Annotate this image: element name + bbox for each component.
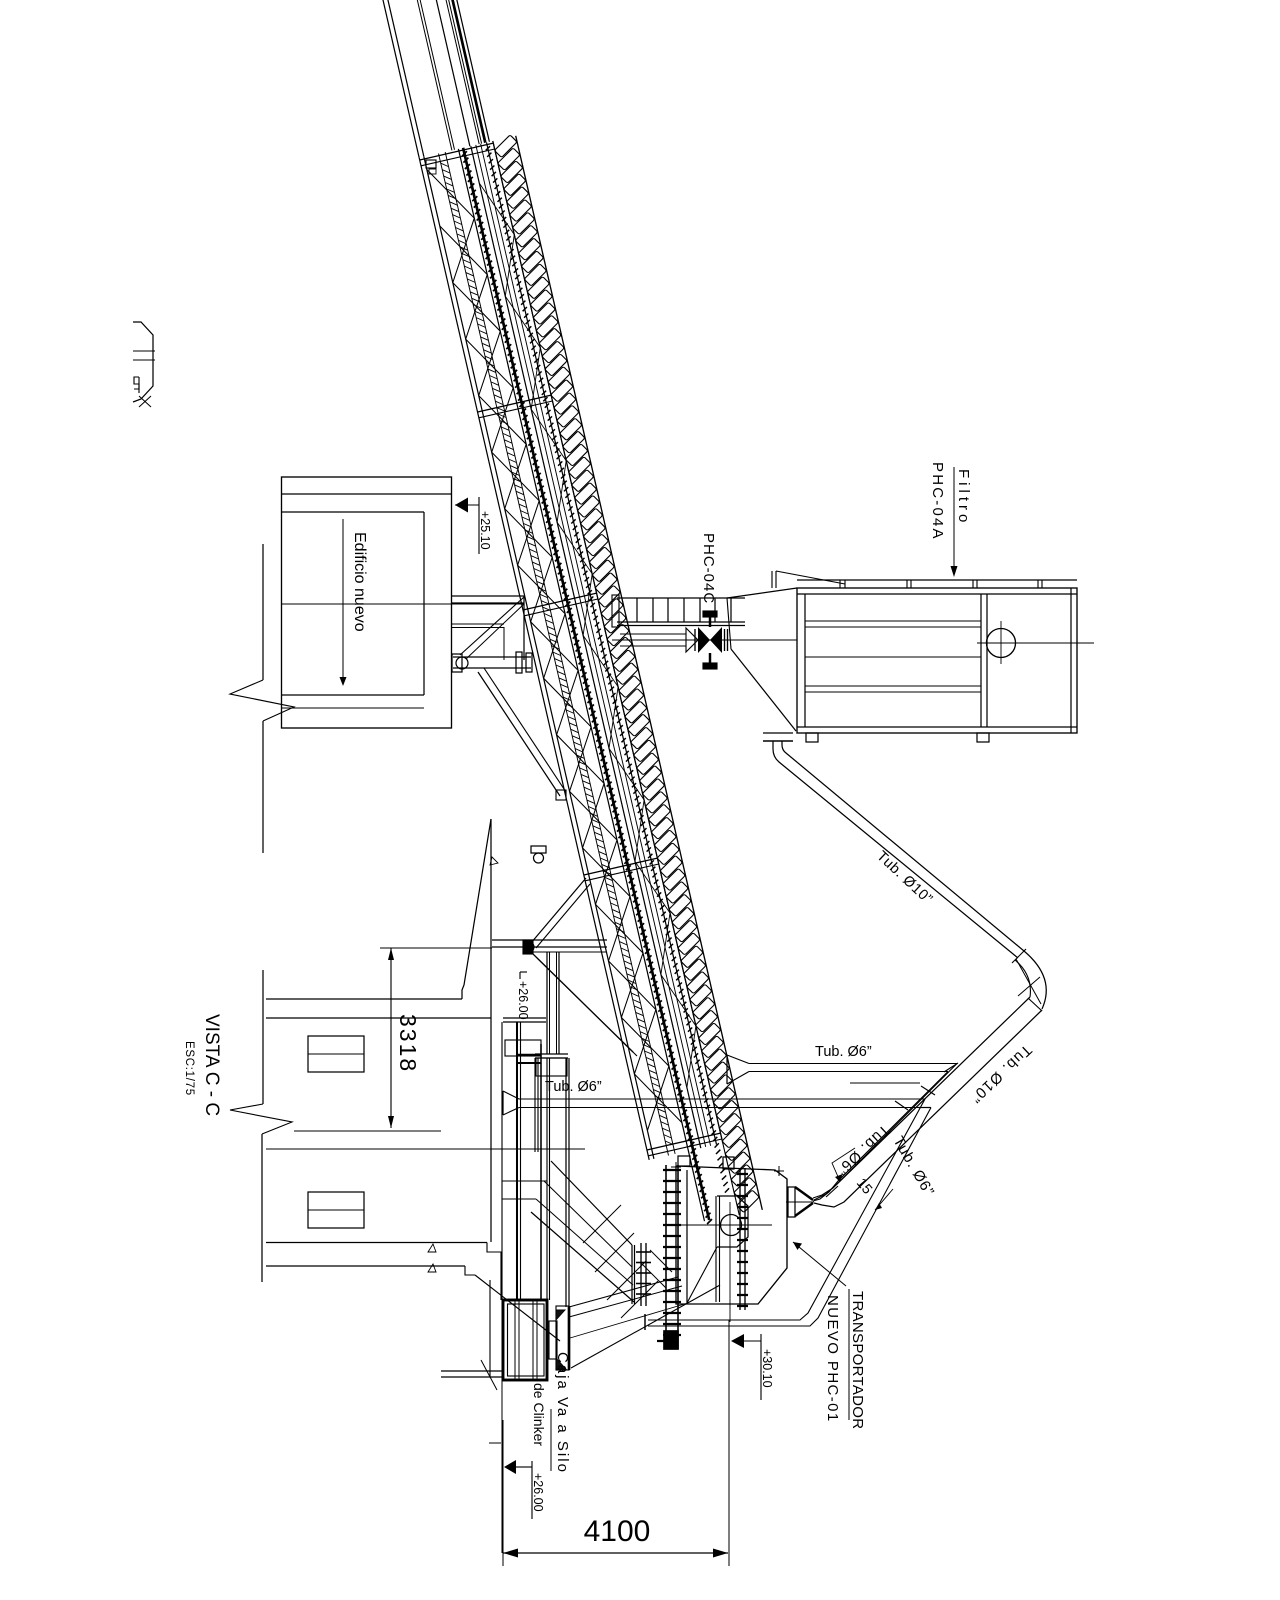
svg-text:PHC-04C: PHC-04C	[700, 533, 717, 604]
svg-text:+30.10: +30.10	[760, 1349, 774, 1388]
svg-text:+25.10: +25.10	[478, 511, 492, 550]
svg-text:+26.00: +26.00	[516, 981, 530, 1020]
svg-text:ESC:1/75: ESC:1/75	[183, 1041, 195, 1096]
svg-text:NUEVO PHC-01: NUEVO PHC-01	[824, 1295, 841, 1423]
svg-text:Filtro: Filtro	[955, 469, 972, 526]
svg-text:Edificio nuevo: Edificio nuevo	[351, 532, 368, 632]
svg-text:Tub. Ø6”: Tub. Ø6”	[545, 1079, 602, 1095]
svg-text:+26.00: +26.00	[531, 1473, 545, 1512]
svg-text:3318: 3318	[395, 1014, 421, 1073]
svg-text:TRANSPORTADOR: TRANSPORTADOR	[849, 1291, 866, 1429]
svg-text:de Clinker: de Clinker	[531, 1383, 547, 1446]
svg-text:VISTA C - C: VISTA C - C	[201, 1014, 222, 1116]
svg-text:Caja Va a Silo: Caja Va a Silo	[554, 1352, 571, 1474]
svg-text:Tub. Ø6”: Tub. Ø6”	[815, 1044, 872, 1060]
svg-text:4100: 4100	[584, 1515, 651, 1548]
svg-text:PHC-04A: PHC-04A	[929, 462, 946, 541]
